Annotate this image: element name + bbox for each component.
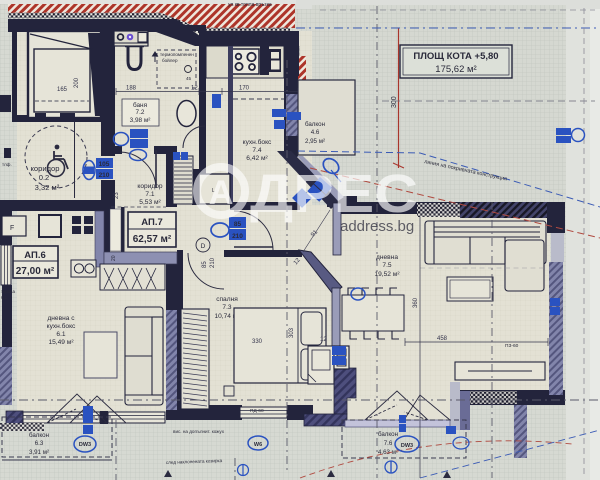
svg-text:address.bg: address.bg [340,218,414,235]
svg-text:W6: W6 [254,442,262,448]
svg-text:АП.7: АП.7 [141,217,163,228]
svg-text:тлф.: тлф. [2,162,12,167]
svg-text:458: 458 [437,336,448,342]
svg-text:термопомпенен: термопомпенен [160,52,194,57]
svg-text:ПД-60: ПД-60 [250,408,264,414]
svg-text:85: 85 [202,261,208,268]
svg-text:балкон: балкон [29,432,49,439]
svg-text:45: 45 [186,76,192,81]
svg-text:210: 210 [99,172,110,179]
svg-text:330: 330 [252,339,263,345]
svg-text:85: 85 [234,221,242,228]
svg-text:188: 188 [126,86,137,92]
svg-text:АП.6: АП.6 [24,250,46,261]
svg-text:7.5: 7.5 [382,262,391,269]
svg-text:6.3: 6.3 [35,440,44,447]
svg-text:5,53 м²: 5,53 м² [139,199,161,206]
svg-text:6,1: 6,1 [1,295,8,300]
svg-text:62,57 м²: 62,57 м² [133,234,172,245]
svg-text:200: 200 [74,77,80,88]
svg-text:3,98 м²: 3,98 м² [130,117,151,124]
svg-text:210: 210 [232,233,243,240]
svg-text:4.6: 4.6 [311,129,320,136]
svg-text:3,32 м²: 3,32 м² [35,183,60,192]
svg-text:коридор: коридор [137,183,162,190]
svg-text:7.1: 7.1 [145,191,154,198]
svg-text:19,52 м²: 19,52 м² [374,271,400,278]
svg-text:3,91 м²: 3,91 м² [29,449,49,456]
svg-text:175,62 м²: 175,62 м² [435,64,476,75]
svg-text:170: 170 [239,86,250,92]
svg-text:коридор: коридор [31,164,60,173]
svg-text:ПЗ-60: ПЗ-60 [505,343,519,349]
svg-text:тераса: тераса [1,289,15,294]
svg-text:дневна: дневна [376,254,398,261]
svg-text:кухн.бокс: кухн.бокс [47,322,76,330]
svg-text:А: А [209,174,234,212]
svg-text:DW3: DW3 [79,442,91,448]
svg-text:2,95 м²: 2,95 м² [305,138,325,145]
svg-text:F: F [10,225,14,232]
svg-text:D: D [201,243,206,250]
svg-text:7.6: 7.6 [384,440,393,447]
svg-text:ул.кв.топла връзка: ул.кв.топла връзка [228,2,272,8]
svg-text:0.2: 0.2 [39,173,50,182]
svg-text:105: 105 [99,161,110,168]
svg-text:300: 300 [391,96,398,108]
svg-text:7.3: 7.3 [222,304,231,311]
svg-text:12: 12 [191,86,198,92]
svg-text:спалня: спалня [216,296,238,303]
svg-text:балкон: балкон [378,431,398,438]
svg-text:12: 12 [320,337,327,343]
svg-text:27,00 м²: 27,00 м² [16,266,55,277]
svg-text:DW3: DW3 [401,443,413,449]
svg-text:балкон: балкон [305,121,325,128]
svg-text:бойлер: бойлер [162,57,178,63]
svg-text:15,49 м²: 15,49 м² [48,339,74,346]
svg-text:кухн.бокс: кухн.бокс [243,138,272,146]
svg-text:360: 360 [413,297,419,308]
svg-text:баня: баня [133,101,148,109]
svg-text:23: 23 [114,192,120,199]
svg-text:303: 303 [289,327,295,338]
svg-text:вис. на допълнит. кожух: вис. на допълнит. кожух [173,429,225,434]
svg-text:6,42 м²: 6,42 м² [246,155,268,162]
svg-text:165: 165 [57,87,68,93]
svg-text:дневна с: дневна с [47,315,75,322]
svg-text:210: 210 [210,257,216,268]
svg-text:6.1: 6.1 [56,331,65,338]
svg-text:ДРЕС: ДРЕС [250,164,418,224]
svg-text:7.4: 7.4 [252,147,261,154]
svg-text:7.2: 7.2 [136,109,145,116]
svg-text:ПЛОЩ КОТА +5,80: ПЛОЩ КОТА +5,80 [413,51,498,62]
svg-text:20: 20 [111,255,117,261]
